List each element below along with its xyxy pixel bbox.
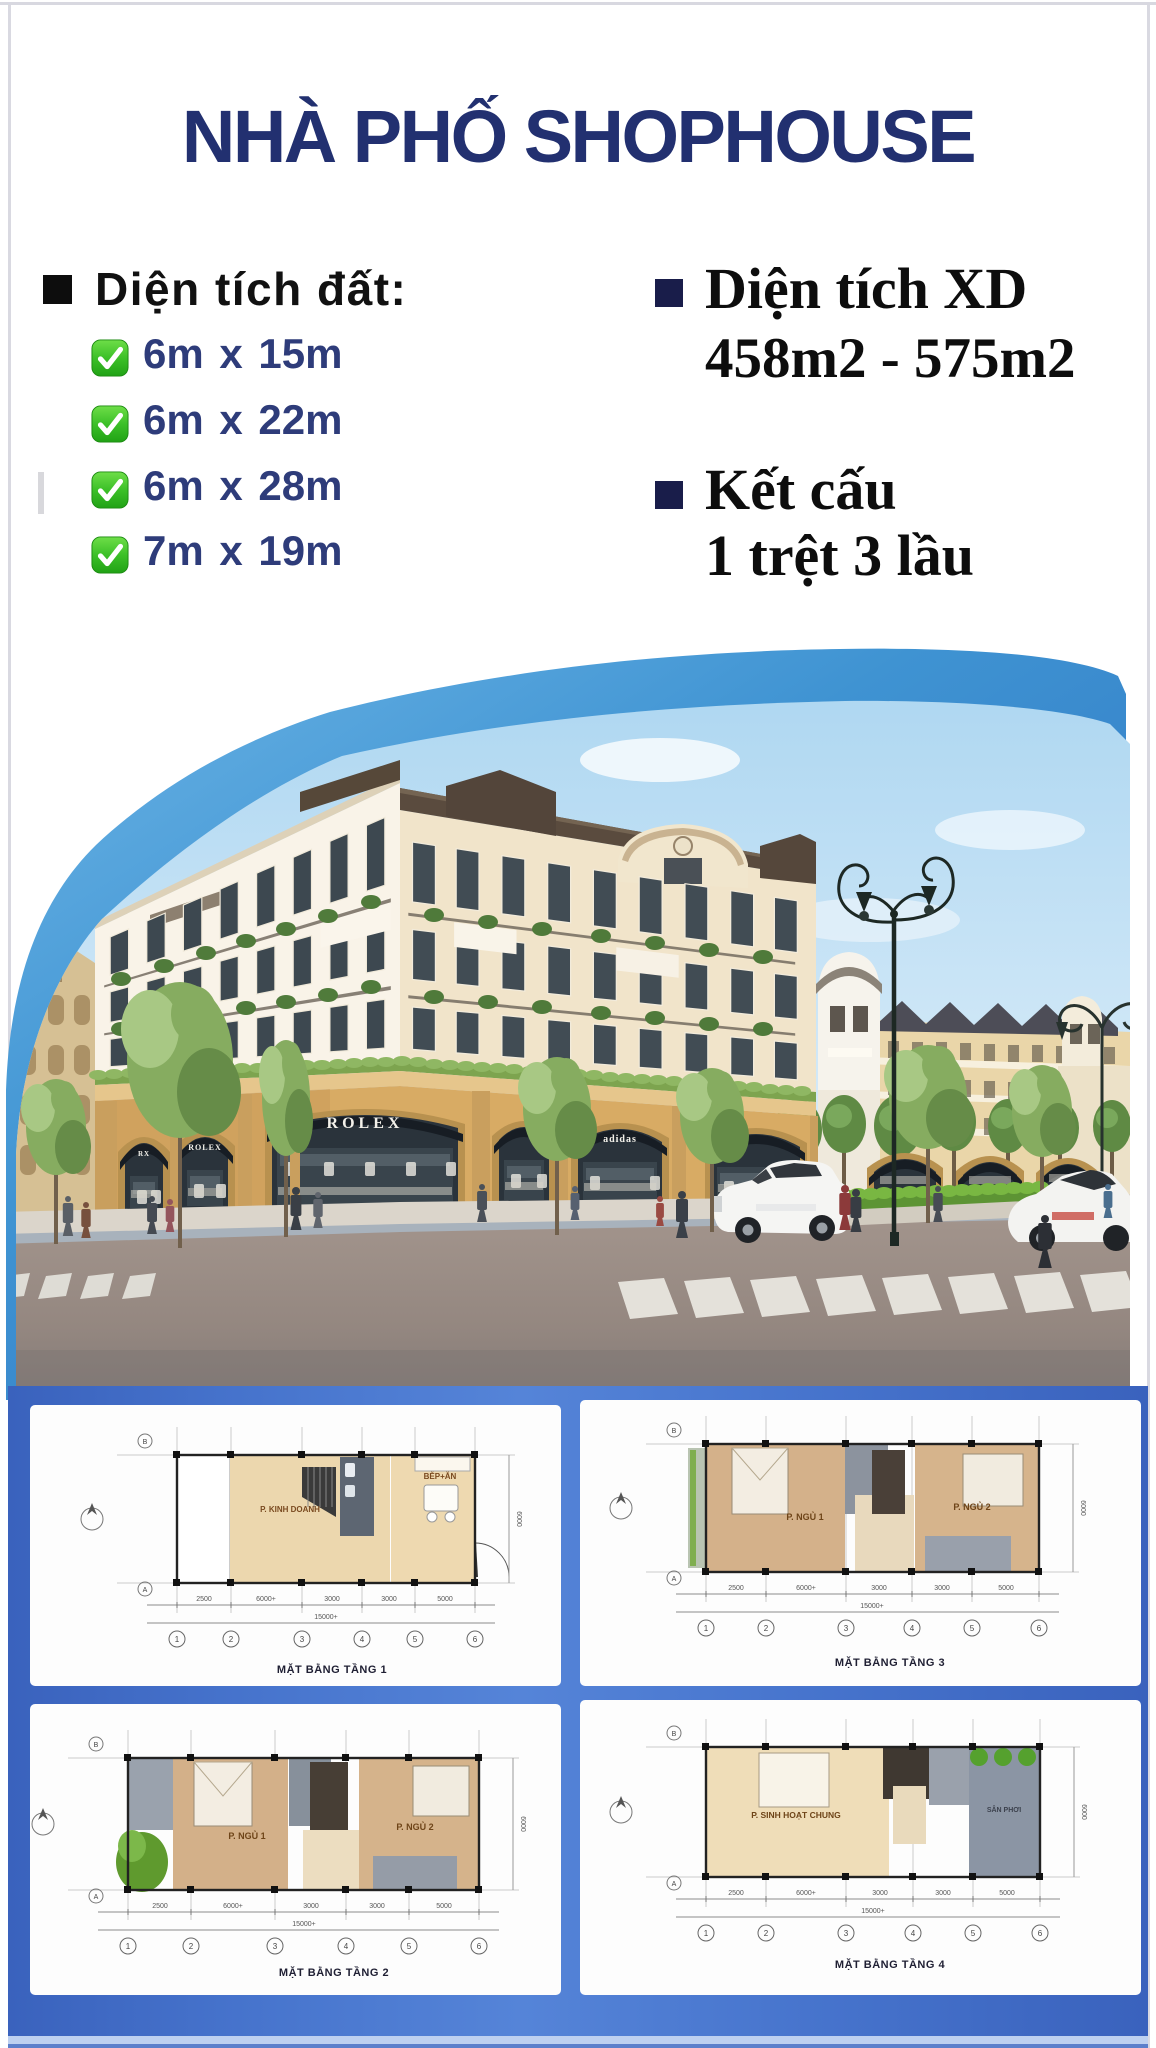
svg-text:5000: 5000 <box>998 1585 1014 1592</box>
svg-text:ROLEX: ROLEX <box>188 1143 221 1152</box>
svg-text:6000+: 6000+ <box>796 1890 816 1897</box>
svg-text:5000: 5000 <box>999 1890 1015 1897</box>
svg-text:4: 4 <box>344 1942 349 1951</box>
svg-text:6000: 6000 <box>519 1816 526 1832</box>
svg-text:3: 3 <box>844 1624 849 1633</box>
svg-text:2: 2 <box>764 1624 769 1633</box>
svg-text:1: 1 <box>704 1929 709 1938</box>
svg-text:P. NGỦ 2: P. NGỦ 2 <box>396 1821 433 1832</box>
svg-text:P. NGỦ 2: P. NGỦ 2 <box>953 1501 990 1512</box>
svg-text:2500: 2500 <box>728 1585 744 1592</box>
svg-text:A: A <box>672 1576 677 1583</box>
svg-text:MẶT BẰNG TẦNG 4: MẶT BẰNG TẦNG 4 <box>835 1958 946 1971</box>
svg-text:6: 6 <box>477 1942 482 1951</box>
svg-text:6000: 6000 <box>1079 1500 1086 1516</box>
svg-text:BỄP+ĂN: BỄP+ĂN <box>424 1472 457 1481</box>
svg-text:3: 3 <box>844 1929 849 1938</box>
svg-text:6000: 6000 <box>515 1511 522 1527</box>
svg-text:1: 1 <box>704 1624 709 1633</box>
svg-text:6: 6 <box>1037 1624 1042 1633</box>
svg-text:3: 3 <box>300 1635 305 1644</box>
svg-text:B: B <box>672 1428 677 1435</box>
svg-text:3000: 3000 <box>934 1585 950 1592</box>
svg-text:5: 5 <box>970 1624 975 1633</box>
svg-text:1: 1 <box>175 1635 180 1644</box>
svg-text:B: B <box>143 1439 148 1446</box>
svg-text:ROLEX: ROLEX <box>327 1115 404 1132</box>
svg-text:B: B <box>672 1731 677 1738</box>
svg-text:A: A <box>143 1587 148 1594</box>
svg-text:6: 6 <box>473 1635 478 1644</box>
svg-text:1: 1 <box>126 1942 131 1951</box>
svg-text:P. SINH HOẠT CHUNG: P. SINH HOẠT CHUNG <box>751 1810 841 1820</box>
svg-text:adidas: adidas <box>603 1134 637 1145</box>
svg-text:5: 5 <box>971 1929 976 1938</box>
svg-text:15000+: 15000+ <box>292 1921 316 1928</box>
svg-text:3: 3 <box>273 1942 278 1951</box>
svg-text:5: 5 <box>407 1942 412 1951</box>
svg-text:3000: 3000 <box>935 1890 951 1897</box>
svg-text:2500: 2500 <box>196 1596 212 1603</box>
svg-text:6000+: 6000+ <box>223 1903 243 1910</box>
svg-text:P. KINH DOANH: P. KINH DOANH <box>260 1505 320 1514</box>
svg-text:15000+: 15000+ <box>861 1908 885 1915</box>
svg-text:4: 4 <box>911 1929 916 1938</box>
svg-text:4: 4 <box>360 1635 365 1644</box>
svg-text:6000+: 6000+ <box>256 1596 276 1603</box>
svg-text:P. NGỦ 1: P. NGỦ 1 <box>786 1511 823 1522</box>
svg-text:2500: 2500 <box>152 1903 168 1910</box>
svg-text:2: 2 <box>189 1942 194 1951</box>
svg-text:3000: 3000 <box>303 1903 319 1910</box>
svg-text:5: 5 <box>413 1635 418 1644</box>
svg-text:MẶT BẰNG TẦNG 2: MẶT BẰNG TẦNG 2 <box>279 1966 389 1979</box>
svg-text:6000+: 6000+ <box>796 1585 816 1592</box>
svg-text:15000+: 15000+ <box>314 1614 338 1621</box>
svg-text:SÂN PHƠI: SÂN PHƠI <box>987 1805 1021 1814</box>
svg-text:A: A <box>94 1894 99 1901</box>
svg-text:MẶT BẰNG TẦNG 3: MẶT BẰNG TẦNG 3 <box>835 1656 945 1669</box>
svg-text:RX: RX <box>138 1150 150 1158</box>
svg-text:3000: 3000 <box>871 1585 887 1592</box>
svg-text:5000: 5000 <box>437 1596 453 1603</box>
svg-text:P. NGỦ 1: P. NGỦ 1 <box>228 1830 265 1841</box>
svg-text:3000: 3000 <box>381 1596 397 1603</box>
svg-text:3000: 3000 <box>324 1596 340 1603</box>
svg-text:2500: 2500 <box>728 1890 744 1897</box>
svg-text:3000: 3000 <box>369 1903 385 1910</box>
svg-text:6000: 6000 <box>1080 1804 1087 1820</box>
svg-text:5000: 5000 <box>436 1903 452 1910</box>
svg-text:15000+: 15000+ <box>860 1603 884 1610</box>
svg-text:MẶT BẰNG TẦNG 1: MẶT BẰNG TẦNG 1 <box>277 1663 387 1676</box>
svg-text:A: A <box>672 1881 677 1888</box>
svg-text:4: 4 <box>910 1624 915 1633</box>
svg-text:2: 2 <box>764 1929 769 1938</box>
svg-text:6: 6 <box>1038 1929 1043 1938</box>
svg-text:3000: 3000 <box>872 1890 888 1897</box>
svg-text:2: 2 <box>229 1635 234 1644</box>
svg-text:B: B <box>94 1742 99 1749</box>
